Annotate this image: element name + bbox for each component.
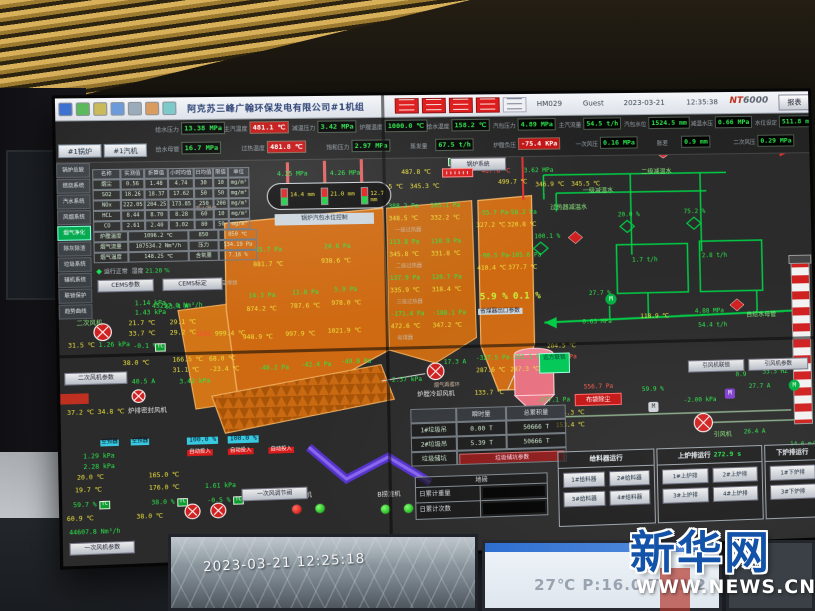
field-value: 38.0 ℃ <box>136 514 163 522</box>
table-cell: 204.25 <box>145 199 169 210</box>
menu-item-3[interactable]: 风烟系统 <box>57 210 91 225</box>
kpi-value: 1524.5 mm <box>648 117 690 130</box>
kpi-label: 减温水压 <box>691 119 713 127</box>
field-value: 29.1 ℃ <box>170 320 197 328</box>
table-cell: 烟气流量 <box>93 242 128 253</box>
field-value: 318.4 ℃ <box>432 287 462 295</box>
menu-item-9[interactable]: 趋势曲线 <box>59 304 93 319</box>
field-value: 40.5 A <box>132 379 156 387</box>
remote-interlock-badge[interactable]: 远方联锁 <box>539 352 570 373</box>
table-cell: 1#垃圾吊 <box>411 422 457 438</box>
table-cell: 2.40 <box>145 220 169 231</box>
table-cell: SO2 <box>92 190 120 201</box>
field-value: 499.7 ℃ <box>498 179 527 186</box>
field-value: 63.4 A <box>165 304 188 312</box>
upper-grate-1-button[interactable]: 1#上炉排 <box>662 468 708 485</box>
field-value: TC <box>99 501 110 510</box>
field-value: 113.8 Pa <box>389 239 419 247</box>
table-cell: 炉膛温度 <box>93 231 128 242</box>
field-value: 20.0 % <box>618 212 640 219</box>
dcs-logo: NT6000 <box>729 96 768 106</box>
table-cell: 148.25 ℃ <box>128 251 189 263</box>
tab-turbine[interactable]: #1汽机 <box>104 143 148 157</box>
field-value: 引风机 <box>714 432 732 440</box>
field-value: TC <box>155 343 166 351</box>
app-icon[interactable] <box>58 103 72 117</box>
feeder-3-button[interactable]: 3#给料器 <box>563 491 605 508</box>
kpi-value: 4.89 MPa <box>517 118 556 131</box>
saf-param-button[interactable]: 二次风机参数 <box>64 371 127 385</box>
table-cell: 8.44 <box>121 210 145 221</box>
upper-grate-time: 272.9 s <box>714 450 742 459</box>
table-cell: 2.61 <box>121 221 145 232</box>
table-cell: 限值 <box>213 167 228 178</box>
kpi-value: 481.1 ℃ <box>249 121 288 134</box>
field-value: 881.7 ℃ <box>253 262 283 270</box>
field-value: 320.8 ℃ <box>507 222 536 230</box>
table-cell: NOx <box>93 200 121 211</box>
field-value: 1.43 kPa <box>135 310 166 318</box>
kpi-label: 汽包压力 <box>493 122 516 130</box>
field-value: 487.8 ℃ <box>401 170 431 177</box>
field-value: 省煤器出口参数 <box>478 308 522 315</box>
upper-grate-run-table: 上炉排运行272.9 s 1#上炉排 2#上炉排 3#上炉排 4#上炉排 <box>656 445 763 523</box>
field-value: 348.5 ℃ <box>389 216 419 224</box>
field-value: 556.7 Pa <box>584 384 614 392</box>
field-value: TC <box>177 498 188 506</box>
field-value: 332.2 ℃ <box>430 215 460 223</box>
table-cell: 3.02 <box>169 220 195 231</box>
field-value: 165.0 ℃ <box>149 472 180 480</box>
kpi-value: 0.16 MPa <box>600 136 638 149</box>
field-value: 19.7 ℃ <box>75 487 102 495</box>
daily-count-value <box>483 501 545 514</box>
field-value: 27.7 A <box>749 383 771 391</box>
kpi-value: 0.29 MPa <box>757 134 794 146</box>
kpi-value: 511.8 mm <box>779 115 815 127</box>
table-cell: 850 ℃ <box>218 229 257 240</box>
kpi-label: 蒸发量 <box>410 142 427 150</box>
field-value: 二次风机 <box>76 321 102 329</box>
kpi-label: 二次风压 <box>733 138 755 146</box>
field-value: 100.0 % <box>187 437 219 445</box>
field-value: 176.0 ℃ <box>149 485 180 493</box>
field-value: 335.9 ℃ <box>390 288 420 296</box>
kpi-value: 481.8 ℃ <box>267 140 306 153</box>
table-cell: 134.19 Pa <box>219 239 258 250</box>
nav-forward-icon[interactable] <box>93 102 107 116</box>
field-value: 1.14 kPa <box>135 300 166 308</box>
cems-table: 名称实测值折算值小时均值日均值限值单位 烟尘0.561.484.743010mg… <box>92 167 257 263</box>
table-cell: 0.56 <box>120 179 144 190</box>
field-value: 21.7 ℃ <box>129 320 156 328</box>
kpi-label: 水位设定 <box>755 119 777 127</box>
field-value: -105.6 Pa <box>508 252 542 260</box>
field-value: 133.7 ℃ <box>475 390 505 398</box>
field-value: 省煤器 <box>397 336 413 342</box>
menu-item-7[interactable]: 辅机系统 <box>58 273 92 288</box>
field-value: 4.26 MPa <box>330 171 361 179</box>
table-cell: 50 <box>214 219 229 230</box>
field-value: 472.6 ℃ <box>391 324 421 332</box>
field-value: 14.3 Pa <box>248 293 275 301</box>
table-cell: 173.85 <box>168 199 194 210</box>
field-value: 105.1 Pa <box>430 203 460 211</box>
field-value: -49.8 Pa <box>341 359 372 367</box>
field-value: 29.2 ℃ <box>170 330 197 338</box>
pressure-alarm-tag <box>442 168 473 178</box>
field-value: 938.6 ℃ <box>321 258 351 266</box>
table-cell: 50 <box>213 188 228 199</box>
field-value: 68.0 ℃ <box>209 356 236 364</box>
field-value: 2.8 t/h <box>702 253 728 260</box>
field-value: 3.42 kPa <box>179 378 210 386</box>
lower-grate-run-table: 下炉排运行 1#下炉排 3#下炉排 <box>764 443 815 519</box>
field-value: 137.9 Pa <box>390 275 420 283</box>
table-cell: 18.37 <box>144 189 168 200</box>
menu-item-1[interactable]: 燃烧系统 <box>56 179 90 194</box>
table-cell: 222.05 <box>121 200 145 211</box>
field-value: 54.4 t/h <box>698 322 727 330</box>
drum-level-gauge-2 <box>321 188 329 206</box>
table-cell: 80 <box>195 219 214 230</box>
field-value: 377.7 ℃ <box>508 265 537 273</box>
menu-item-2[interactable]: 汽水系统 <box>57 194 91 209</box>
kpi-label: 给水温度 <box>426 122 449 130</box>
field-value: -90.5 Pa <box>479 253 509 261</box>
field-value: 31.5 ℃ <box>68 343 95 351</box>
kpi-label: 给水母管 <box>156 145 180 154</box>
table-cell: 250 <box>194 199 213 210</box>
scada-screen: 阿克苏三峰广翰环保发电有限公司#1机组 HM029 Guest 2023-03-… <box>55 91 815 566</box>
table-cell: 小时均值 <box>168 168 194 179</box>
time-text: 12:35:38 <box>686 98 718 106</box>
alarm-tile-2[interactable] <box>422 98 446 114</box>
trend-icon[interactable] <box>162 101 176 115</box>
field-value: 1.29 kPa <box>83 453 115 461</box>
sidebar-menu: 锅炉总貌 燃烧系统 汽水系统 风烟系统 烟气净化 除灰除渣 垃圾系统 辅机系统 … <box>56 163 93 321</box>
daily-count-label: 日累计次数 <box>416 501 481 519</box>
date-text: 2023-03-21 <box>623 99 664 107</box>
table-cell: 10 <box>213 178 228 189</box>
table-cell: 单位 <box>228 167 250 178</box>
field-value: 空预器 <box>100 440 119 447</box>
drum-level-gauge-3 <box>361 187 369 205</box>
field-value: 1501 <box>196 332 212 340</box>
field-value: -327.5 Pa <box>476 355 510 363</box>
field-value: 345.8 ℃ <box>389 252 419 260</box>
menu-item-5[interactable]: 除灰除渣 <box>57 241 91 256</box>
field-value: 59.9 % <box>642 386 664 394</box>
field-value: -2.00 kPa <box>684 397 717 405</box>
user-name: Guest <box>583 99 604 107</box>
kpi-label: 胀差 <box>657 139 668 147</box>
report-button[interactable]: 报表 <box>778 94 810 110</box>
drum-level-value: 14.4 mm <box>290 192 315 199</box>
kpi-label: 给水压力 <box>155 125 179 134</box>
alarm-tile-1[interactable] <box>395 98 419 114</box>
field-value: 二级过热器 <box>396 264 422 270</box>
menu-item-6[interactable]: 垃圾系统 <box>58 257 92 272</box>
field-value: 5.9 % <box>480 292 508 303</box>
kpi-value: 16.7 MPa <box>181 141 221 154</box>
table-cell: 7.16 % <box>219 250 258 261</box>
xinhua-logo: 新华网 <box>630 516 771 581</box>
field-value: 110.9 Pa <box>431 239 461 247</box>
table-cell: 18.26 <box>121 189 145 200</box>
daily-weight-value <box>483 486 545 498</box>
table-cell: 4.74 <box>168 178 194 189</box>
field-value: 31.1 ℃ <box>173 367 200 375</box>
kpi-value: 54.5 t/h <box>583 117 621 130</box>
table-cell: 压力 <box>189 240 219 251</box>
field-value: 60.9 ℃ <box>67 516 94 524</box>
field-value: 20.0 ℃ <box>77 475 104 483</box>
upper-grate-3-button[interactable]: 3#上炉排 <box>662 487 708 504</box>
table-cell: mg/m³ <box>228 177 250 188</box>
kpi-label: 炉膛温度 <box>359 123 382 131</box>
field-value: 自动投入 <box>187 449 213 456</box>
field-value: M <box>725 388 735 398</box>
field-value: 1.7 t/h <box>632 257 658 264</box>
field-value: 自给水母管 <box>746 312 776 320</box>
table-cell: 2#垃圾吊 <box>411 436 457 452</box>
table-cell: 17.62 <box>168 189 194 200</box>
kpi-value: 1000.0 ℃ <box>385 119 428 132</box>
kpi-value: 158.2 ℃ <box>451 119 489 132</box>
table-cell: mg/m³ <box>229 208 251 219</box>
kpi-value: 0.66 MPa <box>715 116 753 128</box>
alarm-tile-3[interactable] <box>449 98 473 114</box>
table-cell: CO <box>93 221 121 232</box>
weighbridge-panel: 地磅 日累计重量 日累计次数 <box>415 472 549 520</box>
field-value: 166.5 ℃ <box>172 357 203 365</box>
field-value: -188.1 Pa <box>432 310 466 318</box>
field-value: -0.1 % <box>133 343 157 351</box>
table-cell: 折算值 <box>144 168 168 179</box>
lower-grate-3-button[interactable]: 3#下炉排 <box>770 483 815 500</box>
table-cell: 850 <box>188 230 218 241</box>
cems-rows: 烟尘0.561.484.743010mg/m³SO218.2618.3717.6… <box>92 177 256 232</box>
print-icon[interactable] <box>128 102 142 116</box>
lower-grate-title: 下炉排运行 <box>765 444 815 462</box>
field-value: 过热器减温水 <box>550 205 587 213</box>
idfan-param-button[interactable]: 引风机参数 <box>748 357 808 371</box>
upper-grate-4-button[interactable]: 4#上炉排 <box>712 485 758 502</box>
feeder-2-button[interactable]: 2#给料器 <box>608 470 650 487</box>
field-value: 4.25 MPa <box>277 171 308 179</box>
field-value: 37.2 ℃ <box>67 410 94 418</box>
kpi-label: 炉膛负压 <box>493 141 516 149</box>
cctv-monitor: 2023-03-21 12:25:18 <box>168 534 478 611</box>
field-value: 345.3 ℃ <box>410 184 440 192</box>
field-value: 997.9 ℃ <box>285 331 315 339</box>
field-value: 26.4 A <box>744 429 766 437</box>
kpi-label: 过热温度 <box>241 144 265 153</box>
field-value: 2.28 kPa <box>83 464 115 472</box>
paf-param-button[interactable]: 一次风机参数 <box>69 541 135 556</box>
field-value: 388.2 Pa <box>388 204 418 212</box>
baghouse-alarm-box[interactable]: 布袋除尘 <box>575 393 622 407</box>
field-value: 5.9 Pa <box>334 287 357 295</box>
table-cell: 日均值 <box>194 167 213 178</box>
field-value: -46.2 Pa <box>258 365 289 373</box>
pit-label: 垃圾储坑 <box>411 451 457 467</box>
table-cell: 实测值 <box>120 168 144 179</box>
field-value: 287.3 ℃ <box>510 366 539 374</box>
field-value: 自动投入 <box>268 447 294 454</box>
field-value: 烟气再循环 <box>434 383 460 390</box>
field-value: 二级减温水 <box>641 169 672 176</box>
field-value: 24.8 Pa <box>324 244 351 252</box>
field-value: 0.1 % <box>513 291 541 302</box>
table-cell: 名称 <box>92 169 120 180</box>
status-diamond-icon: ◆ <box>96 267 102 275</box>
trash-crane-table: 瞬时量总累积量 1#垃圾吊0.00 T50666 T2#垃圾吊5.39 T506… <box>410 404 567 466</box>
table-cell: 含氧量 <box>189 250 219 261</box>
field-value: -58.2 Pa <box>507 210 537 218</box>
alarm-tile-4[interactable] <box>476 97 500 113</box>
steam-drum: 14.4 mm 21.0 mm 12.7 mm <box>267 181 392 210</box>
field-value: 948.9 ℃ <box>243 334 273 342</box>
table-cell <box>410 408 456 424</box>
kpi-label: 汽包水位 <box>624 120 647 128</box>
drum-level-value: 12.7 mm <box>370 191 390 204</box>
field-value: 0.63 MPa <box>582 319 612 327</box>
kpi-label: 减温压力 <box>292 124 315 133</box>
field-value: 34.8 ℃ <box>98 409 125 417</box>
daily-weight-label: 日累计重量 <box>416 486 481 503</box>
table-cell: 30 <box>194 178 213 189</box>
field-value: 11.8 Pa <box>292 290 319 298</box>
field-value: 978.0 ℃ <box>331 300 361 308</box>
table-cell: 10 <box>214 209 229 220</box>
field-value: -55.7 Pa <box>478 210 508 218</box>
tab-boiler[interactable]: #1锅炉 <box>58 144 102 158</box>
field-value: 346.9 ℃ <box>535 182 564 189</box>
alarm-tile-5[interactable] <box>503 97 527 112</box>
table-cell: 60 <box>194 209 213 220</box>
kpi-value: 67.5 t/h <box>435 138 474 151</box>
field-value: 33.7 ℃ <box>129 331 156 339</box>
field-value: 炉膛冷却风机 <box>417 391 455 399</box>
field-value: 17.3 A <box>444 359 467 367</box>
field-value: 一级过热器 <box>395 228 421 234</box>
drum-level-value: 21.0 mm <box>330 191 355 198</box>
menu-item-8[interactable]: 联锁保护 <box>58 288 92 303</box>
idfan-interlock-button[interactable]: 引风机联锁 <box>688 359 745 373</box>
table-cell: 烟气温度 <box>94 252 129 263</box>
alarm-bell-icon[interactable] <box>145 102 159 116</box>
kpi-label: 饱和压力 <box>326 143 349 152</box>
table-cell: 1.48 <box>144 179 168 190</box>
table-cell: 50 <box>194 188 213 199</box>
table-cell: HCL <box>93 211 121 222</box>
menu-item-4[interactable]: 烟气净化 <box>57 226 91 241</box>
field-value: -42.4 Pa <box>301 362 332 370</box>
field-value: 1.26 kPa <box>99 342 130 350</box>
table-cell: 200 <box>213 198 228 209</box>
table-cell: mg/m³ <box>228 188 250 199</box>
field-value: 一级减温水 <box>583 188 614 195</box>
cems-status: ◆ 运行正常 湿度 21.28 % <box>96 266 170 276</box>
table-cell: mg/m³ <box>228 198 250 209</box>
cems-param-button[interactable]: CEMS参数 <box>97 279 154 293</box>
kpi-value: 13.38 MPa <box>181 122 225 135</box>
field-value: M <box>648 402 658 412</box>
lower-grate-1-button[interactable]: 1#下炉排 <box>770 464 815 481</box>
field-value: 空预器 <box>131 439 150 446</box>
kpi-value: 0.9 mm <box>681 135 711 147</box>
field-value: 0.9 <box>735 372 746 379</box>
station-id: HM029 <box>537 100 562 108</box>
kpi-value: -75.4 KPa <box>518 137 561 150</box>
table-cell: 烟尘 <box>92 179 120 190</box>
field-value: 1.61 kPa <box>205 483 236 491</box>
field-value: -0.5 % <box>207 498 230 506</box>
news-url: WWW.NEWS.CN <box>636 576 815 598</box>
photo-stage: 阿克苏三峰广翰环保发电有限公司#1机组 HM029 Guest 2023-03-… <box>0 0 815 611</box>
upper-grate-2-button[interactable]: 2#上炉排 <box>712 466 758 483</box>
table-cell: 8.70 <box>145 210 169 221</box>
field-value: 347.2 ℃ <box>433 323 463 331</box>
kpi-label: 一次风压 <box>575 140 598 148</box>
field-value: 75.2 % <box>684 209 706 216</box>
kpi-value: 3.42 MPa <box>317 120 357 133</box>
field-value: 38.0 ℃ <box>123 360 150 368</box>
feeder-4-button[interactable]: 4#给料器 <box>609 489 651 506</box>
field-value: 999.4 ℃ <box>215 331 246 339</box>
kpi-label: 主汽温度 <box>224 125 248 134</box>
field-value: 38.0 % <box>151 500 175 508</box>
field-value: 118.9 ℃ <box>640 313 669 321</box>
feeder-1-button[interactable]: 1#给料器 <box>563 471 605 488</box>
primary-air-valve-button[interactable]: 一次风调节阀 <box>241 487 307 502</box>
table-cell: 0.00 T <box>456 421 506 437</box>
field-value: 自动投入 <box>228 448 254 455</box>
drum-level-label: 锅炉汽包水位控制 <box>275 213 374 226</box>
field-value: 59.7 % <box>73 502 97 510</box>
field-value: 1021.9 ℃ <box>328 328 362 336</box>
menu-item-0[interactable]: 锅炉总貌 <box>56 163 90 178</box>
cems-calib-button[interactable]: CEMS标定 <box>162 277 222 291</box>
page-title: 阿克苏三峰广翰环保发电有限公司#1机组 <box>187 101 365 115</box>
field-value: 炉排密封风机 <box>128 408 167 416</box>
field-value: 787.6 ℃ <box>290 303 320 311</box>
field-value: 2.37 kPa <box>392 377 422 385</box>
field-value: 874.2 ℃ <box>247 306 277 314</box>
nav-back-icon[interactable] <box>76 102 90 116</box>
field-value: 3.62 MPa <box>524 168 554 175</box>
field-value: 100.1 % <box>534 234 560 241</box>
field-value: -23.4 ℃ <box>209 366 240 374</box>
field-value: 三级过热器 <box>397 300 423 306</box>
field-value: 120.7 Pa <box>432 274 462 282</box>
field-value: 100.0 % <box>228 435 259 443</box>
video-wall: 阿克苏三峰广翰环保发电有限公司#1机组 HM029 Guest 2023-03-… <box>52 88 815 570</box>
field-value: -171.4 Pa <box>390 311 424 319</box>
home-icon[interactable] <box>110 102 124 116</box>
kpi-label: 主汽流量 <box>559 121 582 129</box>
cems-extra-rows: 炉膛温度1096.2 ℃850850 ℃烟气流量107534.2 Nm³/h压力… <box>93 229 257 263</box>
table-cell: 8.28 <box>169 209 195 220</box>
field-value: 4.88 MPa <box>695 308 724 316</box>
news-watermark: 新华网 WWW.NEWS.CN <box>626 514 815 611</box>
field-value: 331.8 ℃ <box>431 251 461 259</box>
field-value: 410.4 ℃ <box>477 265 507 273</box>
table-cell: 瞬时量 <box>456 406 506 422</box>
field-value: 55.7 Pa <box>255 247 282 255</box>
